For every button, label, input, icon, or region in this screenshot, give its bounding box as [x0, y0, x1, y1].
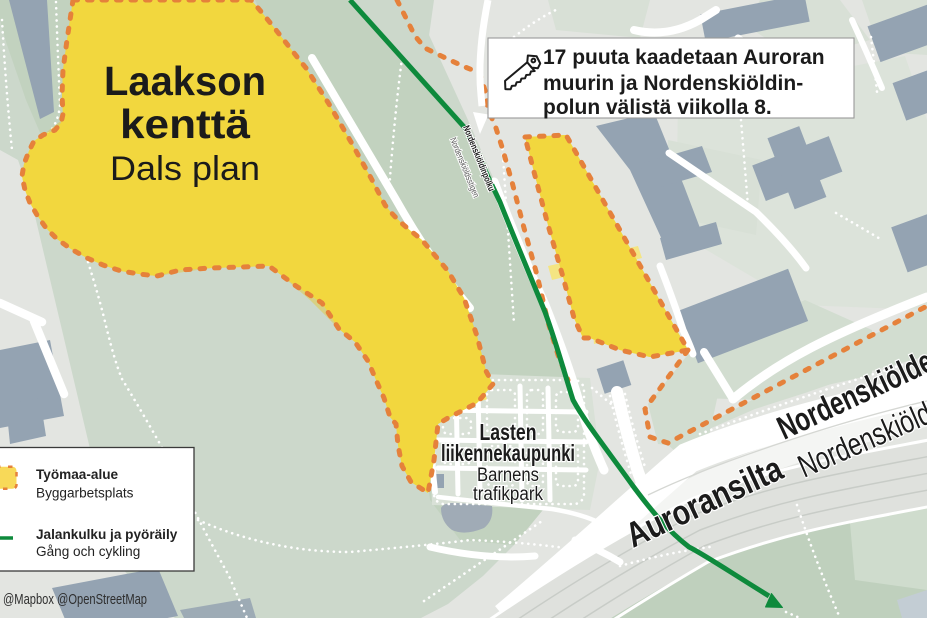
svg-text:Barnens: Barnens [477, 465, 539, 486]
svg-text:Jalankulku ja pyöräily: Jalankulku ja pyöräily [36, 527, 178, 542]
svg-text:polun välistä viikolla 8.: polun välistä viikolla 8. [543, 96, 772, 119]
svg-text:liikennekaupunki: liikennekaupunki [441, 440, 575, 466]
svg-text:Laakson: Laakson [104, 58, 266, 104]
svg-text:17 puuta kaadetaan Auroran: 17 puuta kaadetaan Auroran [543, 46, 825, 69]
svg-text:Työmaa-alue: Työmaa-alue [36, 467, 119, 482]
svg-text:trafikpark: trafikpark [473, 484, 543, 505]
svg-text:Dals plan: Dals plan [110, 150, 260, 188]
svg-text:Gång och cykling: Gång och cykling [36, 544, 140, 559]
svg-text:muurin ja Nordenskiöldin-: muurin ja Nordenskiöldin- [543, 72, 803, 95]
svg-text:kenttä: kenttä [120, 101, 250, 147]
svg-text:@Mapbox @OpenStreetMap: @Mapbox @OpenStreetMap [3, 591, 147, 608]
svg-text:Byggarbetsplats: Byggarbetsplats [36, 486, 134, 501]
